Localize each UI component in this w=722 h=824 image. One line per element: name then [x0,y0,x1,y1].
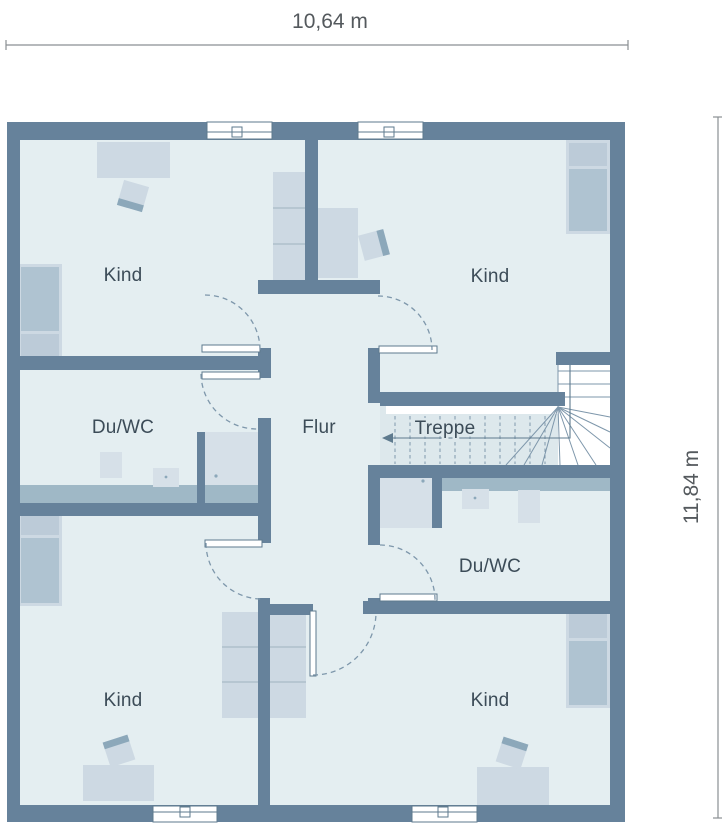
dimension-top: 10,64 m [6,10,628,50]
bed-duvet [569,641,607,705]
door-leaf-kind-top-right [379,346,437,353]
bed [18,509,62,606]
wardrobe [222,612,258,718]
floor-plan-drawing: Kind Kind Du/WC Flur Treppe Du/WC Kind K… [0,0,722,824]
wall-kind-bath-left [20,356,261,370]
wardrobe [273,172,305,280]
dimension-right-label: 11,84 m [680,450,703,524]
wall-between-bottom-rooms [258,598,270,805]
wall-outer-right [610,122,625,822]
shower [205,432,261,485]
bed-duvet [569,169,607,231]
dimension-top-label: 10,64 m [292,10,368,33]
bed-pillow [569,614,607,638]
desk [318,208,358,278]
bed [18,264,62,359]
window [412,806,477,822]
wall-between-top-rooms [305,140,318,280]
door-leaf-bath-left [202,372,260,379]
shower-drain [214,474,217,477]
wardrobe [270,612,306,718]
bed-duvet [21,538,59,603]
bed [566,611,610,708]
shower-drain [421,479,424,482]
room-label-kind-bottom-left: Kind [104,690,143,711]
room-label-bath-left: Du/WC [92,417,154,438]
toilet [518,490,540,523]
room-label-kind-bottom-right: Kind [471,690,510,711]
wall-outer-left [7,122,20,822]
wall-outer-bottom [7,805,625,822]
toilet [100,452,122,478]
room-label-stairs: Treppe [415,418,476,439]
window [153,806,217,822]
desk [83,765,154,801]
wall-hall-top [258,280,380,294]
wall-shower-left [197,432,205,503]
dimension-right: 11,84 m [680,117,722,818]
wall-hall-east-upper [368,348,380,403]
door-leaf-kind-bottom-right [310,611,316,676]
wall-stairs-north [380,392,565,406]
room-label-hall: Flur [302,417,336,438]
room-label-kind-top-left: Kind [104,265,143,286]
bed-pillow [21,334,59,356]
wall-stairs-south [380,465,610,478]
wall-hall-east-lower [368,465,380,545]
wall-outer-top [7,122,625,140]
bed [566,140,610,234]
room-label-kind-top-right: Kind [471,266,510,287]
vanity-counter [20,485,261,503]
desk [97,142,170,178]
wall-bath-kind-left [20,503,261,516]
desk [477,767,549,805]
wall-stub [258,604,313,615]
bed-pillow [569,143,607,166]
window [207,122,272,139]
wall-hall-west [258,418,271,543]
floor-plan-page: Kind Kind Du/WC Flur Treppe Du/WC Kind K… [0,0,722,824]
wall-shower-right [432,473,442,528]
door-leaf-kind-top-left [202,345,260,352]
door-leaf-kind-bottom-left [205,540,262,547]
door-leaf-bath-right [380,594,437,601]
window [358,122,423,139]
room-label-bath-right: Du/WC [459,556,521,577]
wall-kind-stairs [556,352,610,365]
wall-bath-kind-right [363,601,610,614]
bed-duvet [21,267,59,331]
stair-winder-area [558,364,610,465]
